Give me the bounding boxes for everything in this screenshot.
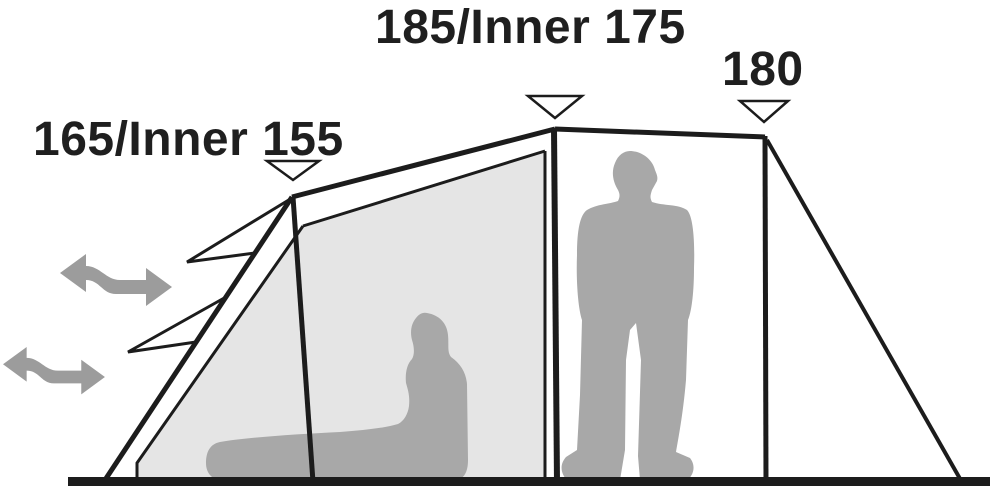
airflow-arrow-upper-icon <box>60 254 172 306</box>
height-label-left-peak: 165/Inner 155 <box>33 116 344 164</box>
tent-side-profile-drawing <box>0 0 1000 489</box>
height-marker-triangle-right <box>740 101 788 122</box>
standing-person-silhouette <box>562 151 695 480</box>
height-label-middle-peak: 185/Inner 175 <box>375 4 686 52</box>
guy-line <box>767 140 963 484</box>
lower-vent-flap <box>128 297 226 352</box>
height-label-right-peak: 180 <box>722 46 804 94</box>
middle-pole <box>554 128 557 483</box>
tent-dimensions-diagram: 165/Inner 155 185/Inner 175 180 <box>0 0 1000 489</box>
inner-tent-panel <box>137 151 545 480</box>
airflow-arrow-lower-icon <box>3 347 105 394</box>
height-marker-triangle-middle <box>528 96 582 118</box>
upper-vent-flap <box>187 198 292 262</box>
ridge-right-section <box>555 129 765 137</box>
ground-line <box>68 477 990 486</box>
rear-pole <box>765 136 766 483</box>
